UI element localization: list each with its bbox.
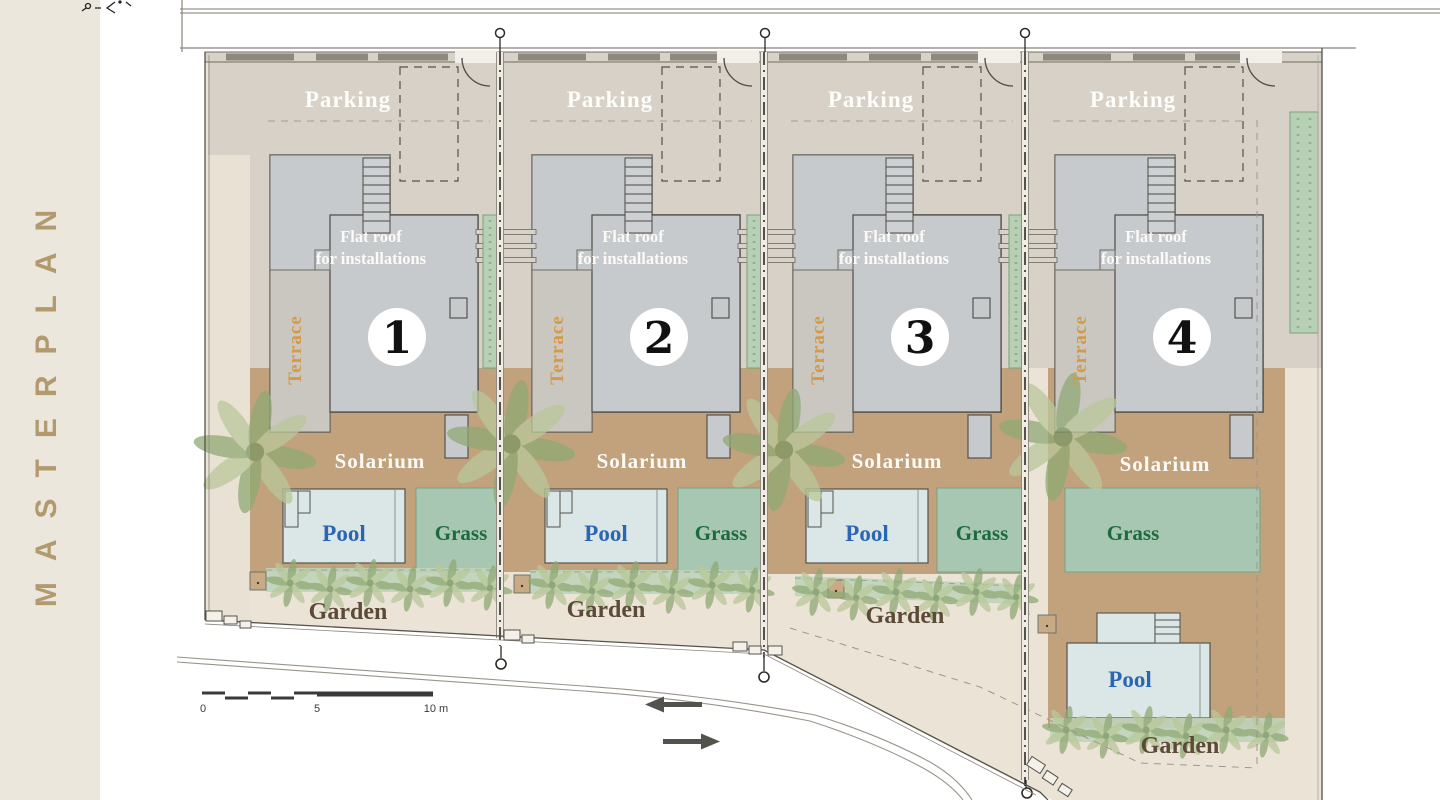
grass-label: Grass <box>1107 521 1160 545</box>
masterplan-page: MASTERPLAN <box>0 0 1440 800</box>
lamp-post-icon <box>1022 788 1032 798</box>
grass-label: Grass <box>695 521 748 545</box>
lamp-post-icon <box>761 29 770 38</box>
terrace-label: Terrace <box>1070 315 1091 385</box>
flat-roof-label-2: for installations <box>1101 249 1212 268</box>
flat-roof-label-1: Flat roof <box>602 227 664 246</box>
flat-roof-label-1: Flat roof <box>340 227 402 246</box>
solarium-label: Solarium <box>852 449 943 473</box>
terrace-label: Terrace <box>547 315 568 385</box>
flat-roof-label-2: for installations <box>316 249 427 268</box>
grass-label: Grass <box>435 521 488 545</box>
site-plan-svg: 0 5 10 m Parking Flat roof for installat… <box>0 0 1440 800</box>
lamp-post-icon <box>759 672 769 682</box>
parking-label: Parking <box>305 87 391 112</box>
pool-label: Pool <box>584 521 627 546</box>
parking-label: Parking <box>1090 87 1176 112</box>
arrow-left-icon <box>645 697 702 713</box>
terrace-label: Terrace <box>285 315 306 385</box>
flat-roof-label-1: Flat roof <box>863 227 925 246</box>
pool-label: Pool <box>1108 667 1151 692</box>
grass-label: Grass <box>956 521 1009 545</box>
solarium-label: Solarium <box>1120 452 1211 476</box>
plot-number: 1 <box>382 313 413 364</box>
lamp-post-icon <box>496 659 506 669</box>
flat-roof-label-2: for installations <box>839 249 950 268</box>
scale-label-10m: 10 m <box>424 703 448 715</box>
scale-label-5: 5 <box>314 703 320 715</box>
entrance-gap <box>455 50 497 63</box>
garden-label: Garden <box>866 603 945 629</box>
scale-label-0: 0 <box>200 703 206 715</box>
parking-label: Parking <box>567 87 653 112</box>
lamp-post-icon <box>1021 29 1030 38</box>
pool-label: Pool <box>845 521 888 546</box>
top-road <box>180 0 1440 52</box>
survey-marker-icon <box>82 1 131 13</box>
flat-roof-label-1: Flat roof <box>1125 227 1187 246</box>
lamp-post-icon <box>496 29 505 38</box>
plot-number: 2 <box>644 313 675 364</box>
garden-label: Garden <box>1141 733 1220 759</box>
pool-label: Pool <box>322 521 365 546</box>
arrow-right-icon <box>663 734 720 750</box>
solarium-label: Solarium <box>335 449 426 473</box>
garden-label: Garden <box>309 599 388 625</box>
plot-number: 4 <box>1167 313 1198 364</box>
scale-bar: 0 5 10 m <box>200 692 448 716</box>
plot-number: 3 <box>905 313 936 364</box>
solarium-label: Solarium <box>597 449 688 473</box>
garden-label: Garden <box>567 597 646 623</box>
parking-label: Parking <box>828 87 914 112</box>
boundary-2-3 <box>759 29 770 683</box>
terrace-label: Terrace <box>808 315 829 385</box>
flat-roof-label-2: for installations <box>578 249 689 268</box>
